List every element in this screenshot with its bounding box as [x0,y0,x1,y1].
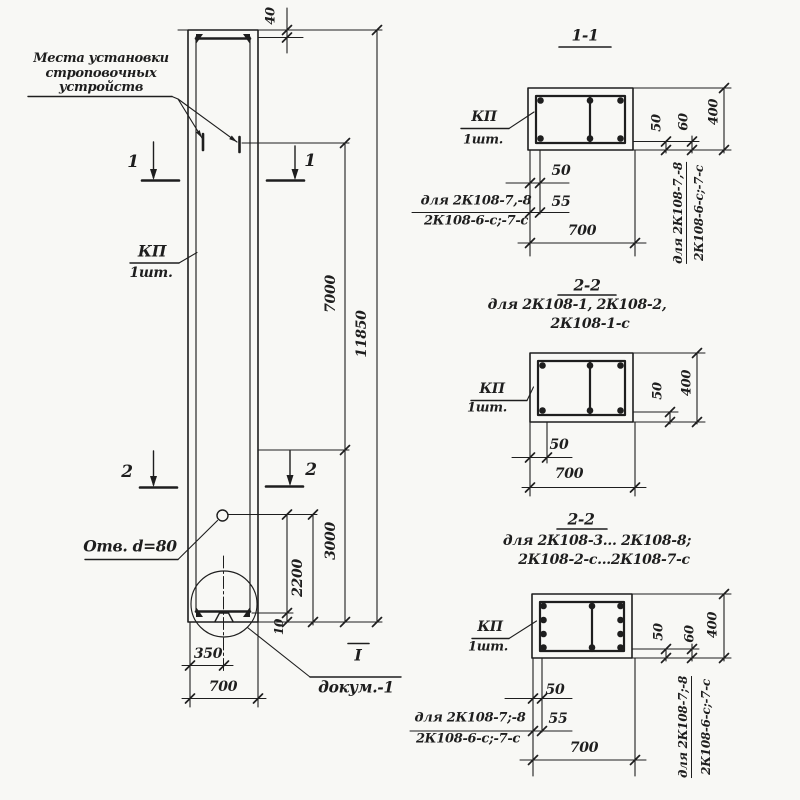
s3-side-dim-400: 400 [706,612,721,638]
s2-note-2: 2К108-1-с [551,316,630,332]
dim-40: 40 [264,7,279,25]
section-2-2b-title: 2-2 [567,510,594,529]
dim-700: 700 [209,679,237,695]
s1-side-dim-50: 50 [650,114,665,132]
kp-qty-label: 1шт. [129,265,172,281]
s1-side-dim-400: 400 [707,99,722,125]
section-mark-1-right: 1 [304,151,316,171]
s2-note-1: для 2К108-1, 2К108-2, [488,297,667,313]
s3-note-2: 2К108-2-с...2К108-7-с [518,552,690,568]
section-mark-2-left: 2 [121,462,133,482]
s2-kp-label: КП [479,381,504,397]
s3-kp-qty: 1шт. [468,640,508,655]
section-mark-2-right: 2 [305,460,317,480]
s3-kp-label: КП [477,619,502,635]
hole-note: Отв. d=80 [83,537,177,556]
detail-ref: докум.-1 [318,678,394,697]
s2-side-dim-50: 50 [651,382,666,400]
s1-right-note-2: 2К108-6-с;-7-с [692,165,706,261]
s1-left-note-2: 2К108-6-с;-7-с [424,214,528,229]
s2-kp-qty: 1шт. [467,401,507,416]
s1-dim-55: 55 [552,194,571,210]
s1-dim-700: 700 [568,223,596,239]
s3-dim-700: 700 [570,740,598,756]
s2-dim-700: 700 [555,466,583,482]
s2-dim-50: 50 [550,437,569,453]
section-2-2a-title: 2-2 [573,276,600,295]
s1-side-dim-60: 60 [677,113,692,131]
dim-7000: 7000 [323,275,339,313]
s3-note-1: для 2К108-3... 2К108-8; [503,533,691,549]
section-cut-marks [140,142,304,488]
strop-note: Места установки строповочных устройств [33,52,169,96]
dim-10: 10 [272,619,286,635]
dim-11850: 11850 [354,310,370,357]
s1-left-note-1: для 2К108-7,-8 [421,194,532,209]
s1-kp-label: КП [471,109,496,125]
column-outline [188,30,258,672]
dim-2200: 2200 [290,559,306,597]
section-1-1-title: 1-1 [571,26,598,45]
s3-right-note-1: для 2К108-7;-8 [676,676,692,778]
s1-right-note-1: для 2К108-7,-8 [671,162,687,264]
dim-350: 350 [194,646,222,662]
s1-dim-50: 50 [552,163,571,179]
dim-3000: 3000 [323,522,339,560]
section-mark-1-left: 1 [127,152,139,172]
s1-kp-qty: 1шт. [463,133,503,148]
kp-label: КП [138,242,166,261]
detail-mark: I [355,646,362,665]
s3-right-note-2: 2К108-6-с;-7-с [699,679,713,775]
s3-dim-50: 50 [546,682,565,698]
s3-dim-55: 55 [549,711,568,727]
s3-left-note-1: для 2К108-7;-8 [415,711,526,726]
blueprint-sheet: Места установки строповочных устройств К… [0,0,800,800]
main-dimension-lines [178,8,382,707]
s3-side-dim-50: 50 [652,623,667,641]
s3-left-note-2: 2К108-6-с;-7-с [416,732,520,747]
s3-side-dim-60: 60 [683,625,698,643]
s2-side-dim-400: 400 [680,370,695,396]
